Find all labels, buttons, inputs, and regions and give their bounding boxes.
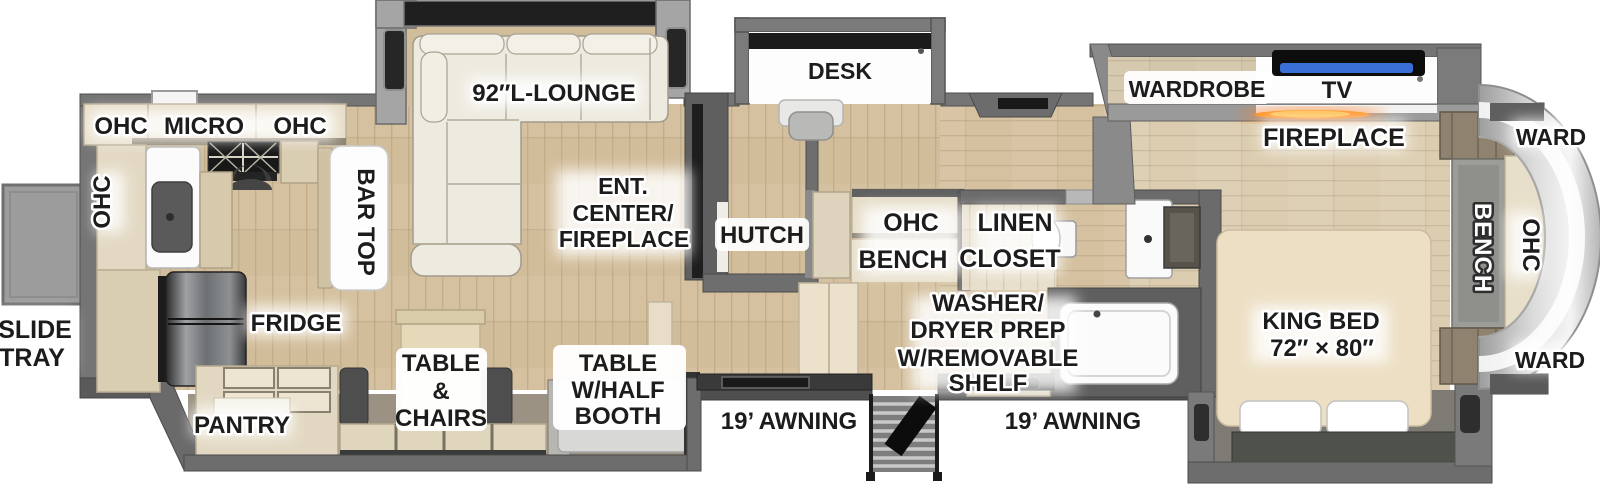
svg-text:ENT.: ENT. (598, 173, 648, 199)
svg-text:FRIDGE: FRIDGE (251, 310, 342, 337)
svg-text:LINEN: LINEN (978, 209, 1053, 237)
svg-text:SHELF: SHELF (949, 370, 1028, 397)
svg-text:DESK: DESK (808, 58, 872, 84)
svg-text:CENTER/: CENTER/ (573, 200, 675, 226)
svg-text:19’ AWNING: 19’ AWNING (721, 408, 857, 435)
svg-text:TRAY: TRAY (0, 344, 65, 372)
svg-text:OHC: OHC (1517, 218, 1544, 271)
svg-text:OHC: OHC (883, 209, 939, 237)
svg-text:KING BED: KING BED (1262, 308, 1379, 335)
svg-text:SLIDE: SLIDE (0, 316, 72, 344)
svg-text:FIREPLACE: FIREPLACE (1263, 124, 1405, 152)
svg-text:OHC: OHC (94, 113, 147, 140)
svg-text:CLOSET: CLOSET (959, 245, 1060, 273)
svg-text:19’ AWNING: 19’ AWNING (1005, 408, 1141, 435)
svg-text:&: & (432, 378, 449, 405)
svg-text:TV: TV (1322, 77, 1353, 104)
svg-text:OHC: OHC (89, 175, 116, 228)
svg-text:FIREPLACE: FIREPLACE (559, 226, 689, 252)
svg-text:DRYER PREP: DRYER PREP (910, 317, 1065, 344)
svg-text:TABLE: TABLE (402, 350, 480, 377)
svg-text:W/HALF: W/HALF (571, 377, 664, 404)
svg-text:WARD: WARD (1516, 124, 1586, 150)
svg-text:CHAIRS: CHAIRS (395, 405, 487, 432)
svg-text:92″L-LOUNGE: 92″L-LOUNGE (472, 80, 636, 107)
svg-text:BAR TOP: BAR TOP (352, 168, 379, 276)
svg-text:PANTRY: PANTRY (194, 412, 290, 439)
svg-text:WARD: WARD (1515, 347, 1585, 373)
svg-text:BOOTH: BOOTH (575, 403, 662, 430)
svg-text:OHC: OHC (273, 113, 326, 140)
svg-text:WARDROBE: WARDROBE (1129, 76, 1266, 102)
svg-text:WASHER/: WASHER/ (932, 290, 1044, 317)
svg-text:72″ × 80″: 72″ × 80″ (1270, 335, 1374, 362)
svg-text:W/REMOVABLE: W/REMOVABLE (898, 345, 1079, 372)
svg-text:MICRO: MICRO (164, 113, 244, 140)
svg-text:BENCH: BENCH (859, 246, 948, 274)
svg-text:TABLE: TABLE (579, 350, 657, 377)
svg-text:BENCH: BENCH (1469, 203, 1496, 293)
svg-text:HUTCH: HUTCH (720, 222, 804, 249)
